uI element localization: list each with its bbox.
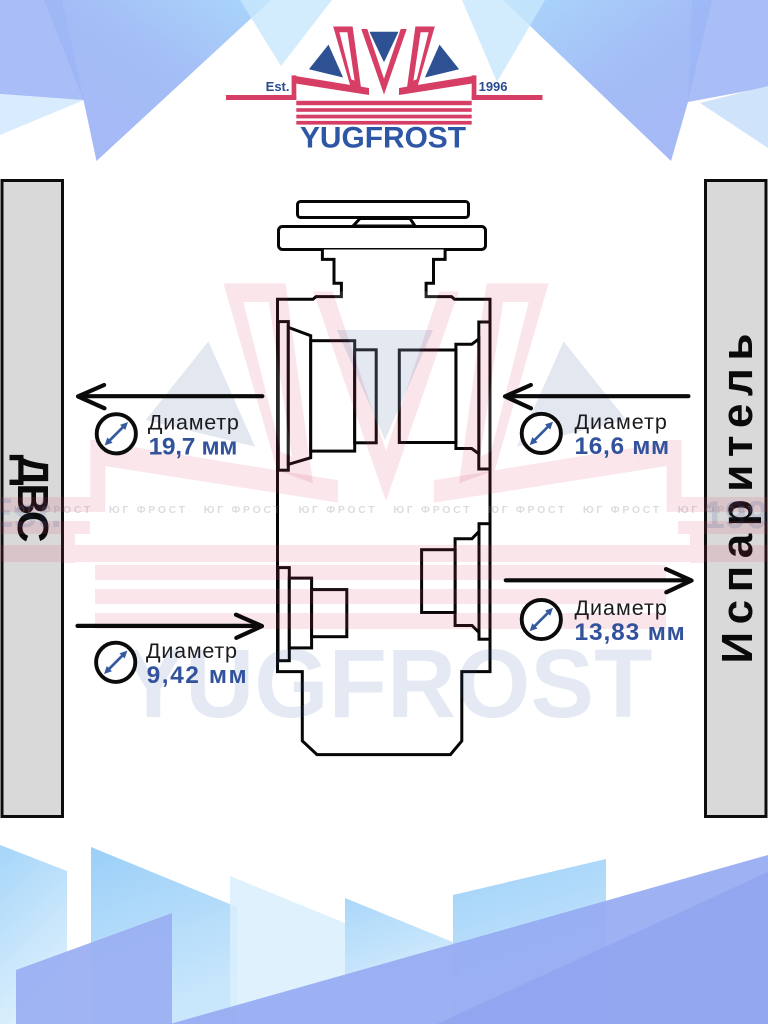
svg-text:Диаметр: Диаметр — [575, 410, 667, 434]
svg-text:13,83 мм: 13,83 мм — [575, 619, 685, 646]
svg-text:19,7 мм: 19,7 мм — [149, 433, 238, 460]
svg-text:YUGFROST: YUGFROST — [300, 121, 466, 154]
svg-text:Диаметр: Диаметр — [148, 410, 239, 434]
svg-text:Диаметр: Диаметр — [146, 639, 237, 663]
svg-text:9,42 мм: 9,42 мм — [147, 662, 247, 689]
svg-text:1996: 1996 — [479, 79, 508, 94]
svg-text:Est.: Est. — [266, 79, 290, 94]
svg-text:Диаметр: Диаметр — [575, 596, 667, 620]
svg-text:16,6 мм: 16,6 мм — [575, 433, 670, 460]
